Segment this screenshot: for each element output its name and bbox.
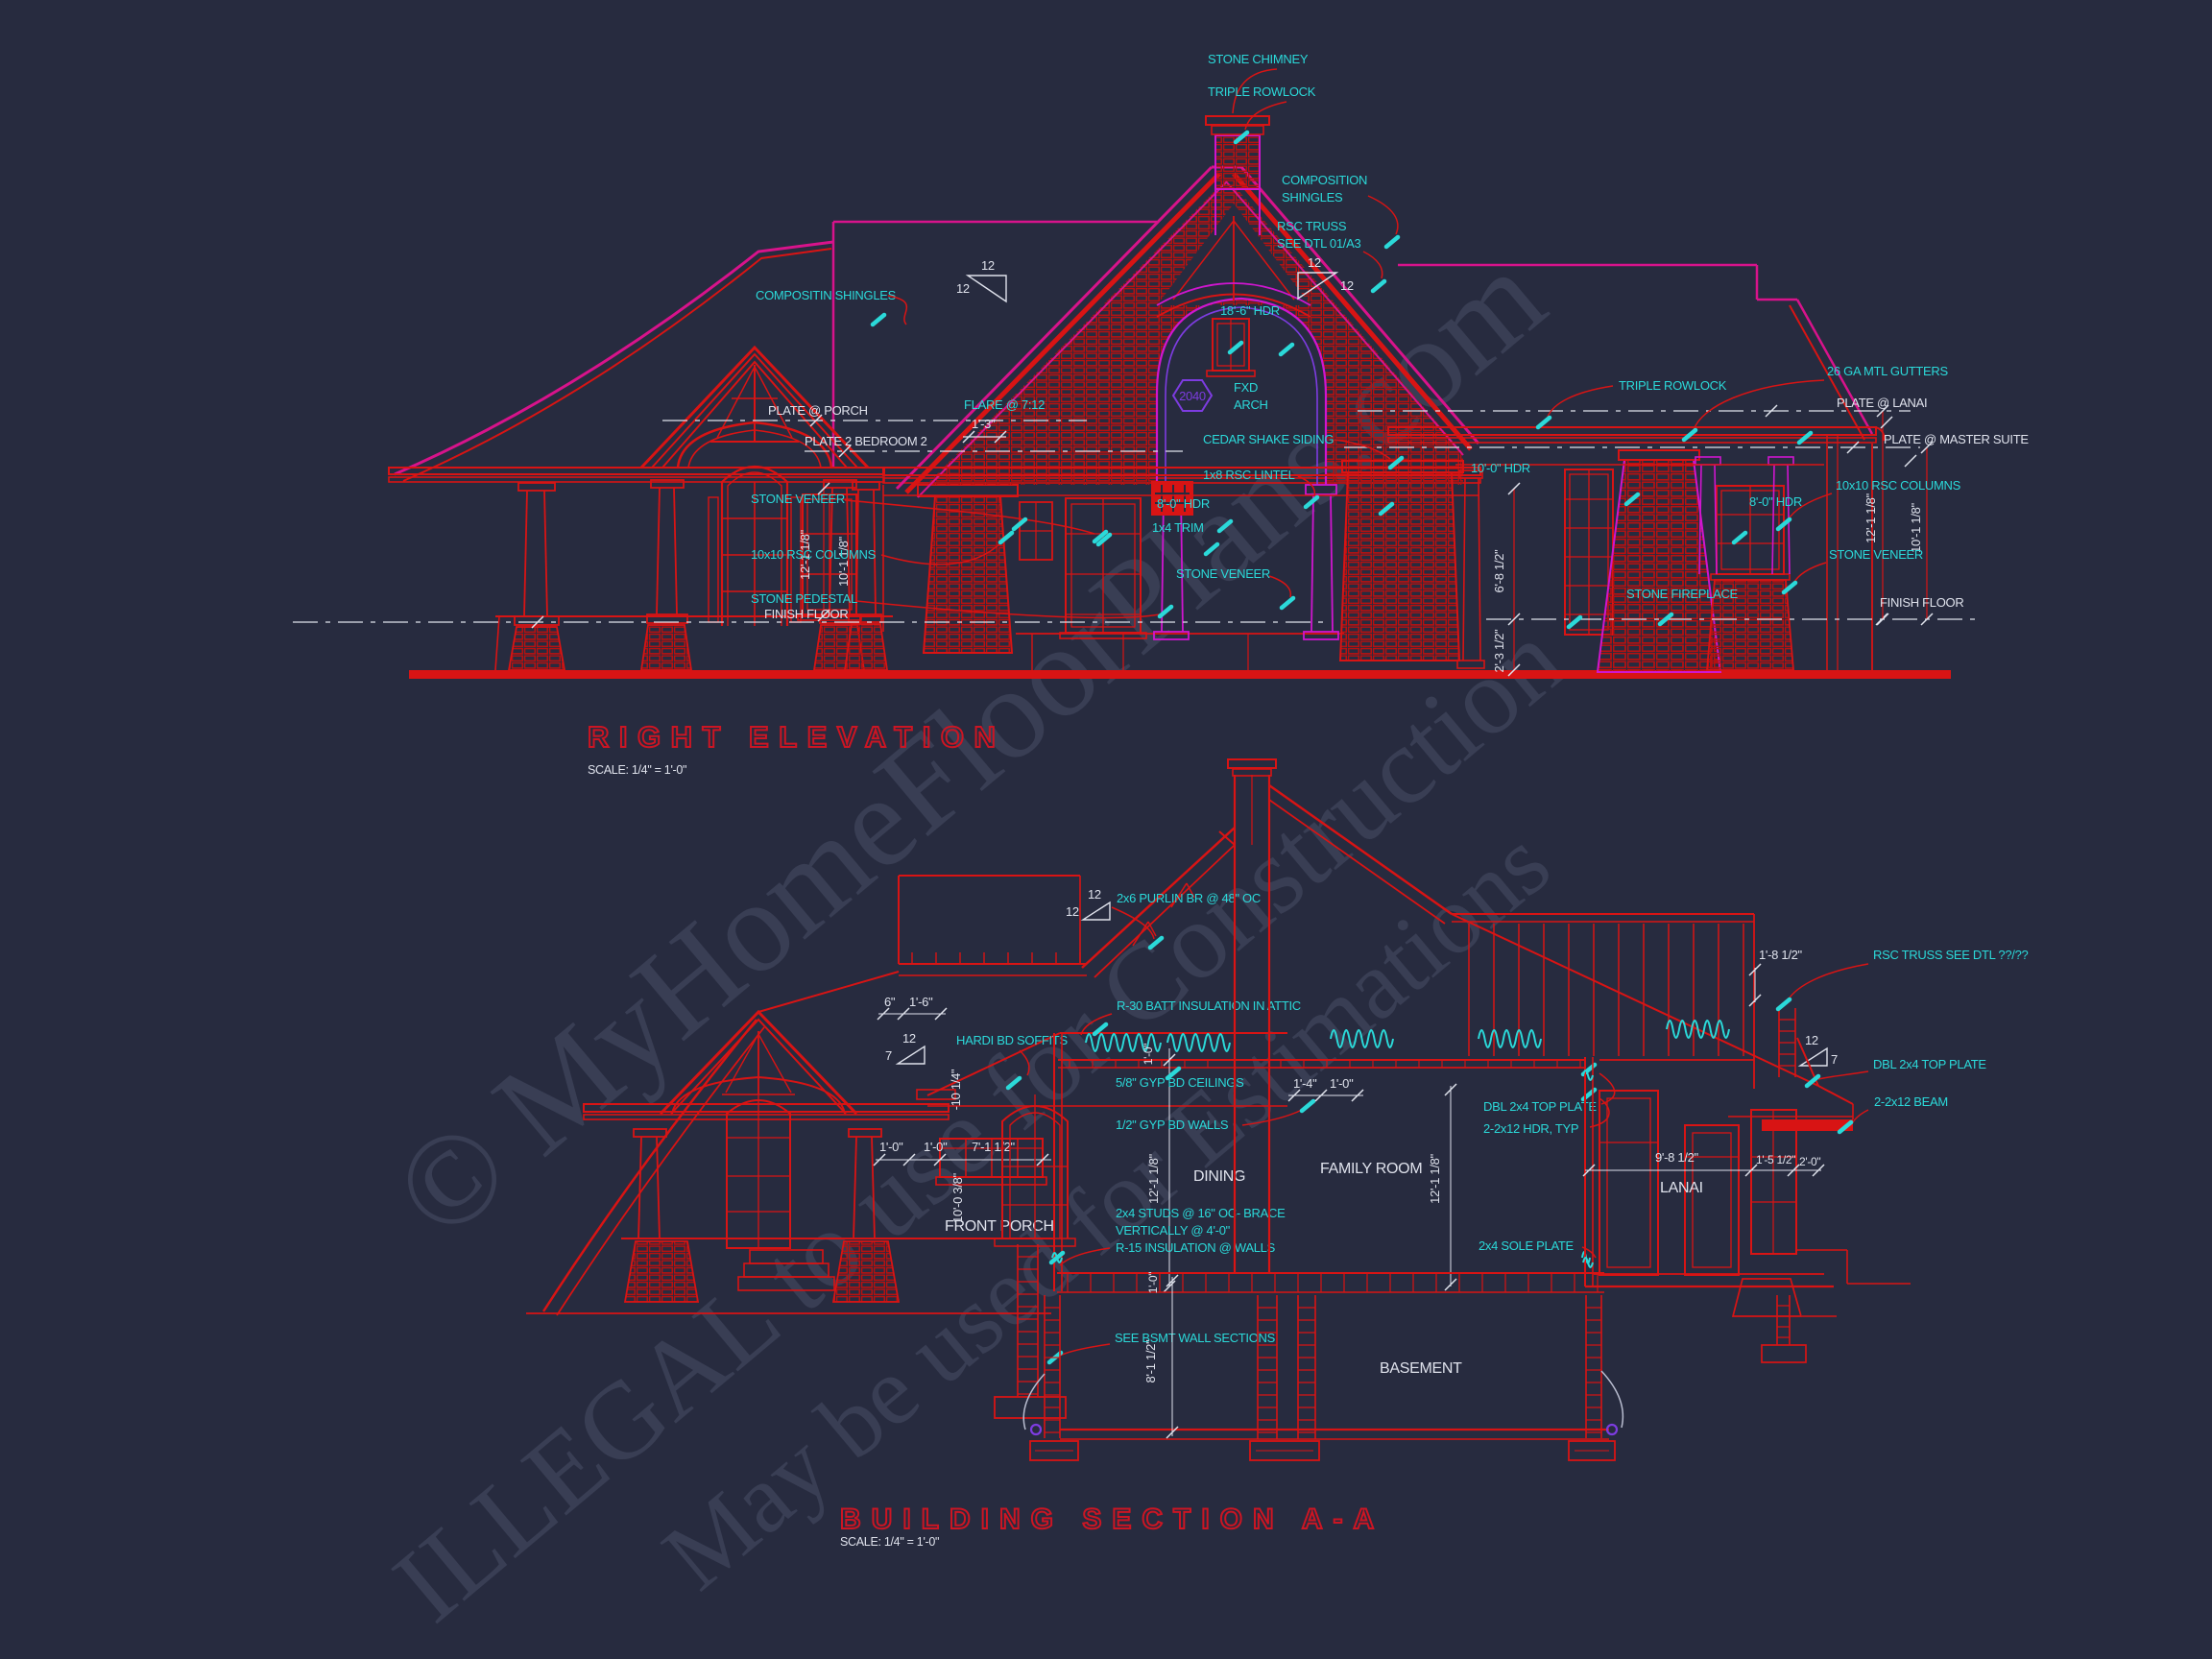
svg-text:12: 12 [1066,904,1079,919]
svg-text:TRIPLE ROWLOCK: TRIPLE ROWLOCK [1208,84,1316,99]
svg-text:2x6 PURLIN BR @ 48" OC: 2x6 PURLIN BR @ 48" OC [1117,891,1261,905]
svg-text:8'-1 1/2": 8'-1 1/2" [1143,1339,1158,1383]
svg-text:7: 7 [1831,1052,1838,1067]
svg-text:2'-3 1/2": 2'-3 1/2" [1492,629,1506,673]
svg-text:1'-0": 1'-0" [1142,1044,1155,1065]
svg-text:RSC TRUSS: RSC TRUSS [1277,219,1347,233]
svg-text:SCALE: 1/4" = 1'-0": SCALE: 1/4" = 1'-0" [840,1535,939,1549]
svg-text:HARDI BD SOFFITS: HARDI BD SOFFITS [956,1033,1068,1047]
svg-text:2'-0": 2'-0" [1799,1155,1820,1168]
svg-text:FAMILY ROOM: FAMILY ROOM [1320,1161,1422,1177]
svg-text:1'-5 1/2": 1'-5 1/2" [1756,1153,1795,1166]
svg-text:10'-0" HDR: 10'-0" HDR [1471,461,1530,475]
svg-text:12'-1 1/8": 12'-1 1/8" [1428,1153,1442,1203]
svg-text:TRIPLE ROWLOCK: TRIPLE ROWLOCK [1619,378,1727,393]
svg-text:SCALE: 1/4" = 1'-0": SCALE: 1/4" = 1'-0" [588,763,686,777]
svg-text:12'-1 1/8": 12'-1 1/8" [1863,493,1878,542]
svg-text:10'-0 3/8": 10'-0 3/8" [950,1172,965,1222]
svg-text:5/8" GYP BD CEILINGS: 5/8" GYP BD CEILINGS [1116,1075,1244,1090]
svg-text:DBL 2x4 TOP PLATE: DBL 2x4 TOP PLATE [1873,1057,1986,1071]
svg-text:LANAI: LANAI [1660,1180,1703,1196]
svg-text:DINING: DINING [1193,1168,1245,1185]
svg-text:2x4 SOLE PLATE: 2x4 SOLE PLATE [1479,1238,1575,1253]
svg-text:STONE CHIMNEY: STONE CHIMNEY [1208,52,1309,66]
svg-text:SEE DTL 01/A3: SEE DTL 01/A3 [1277,236,1360,251]
svg-text:2-2x12 BEAM: 2-2x12 BEAM [1874,1094,1948,1109]
svg-text:ARCH: ARCH [1234,397,1268,412]
svg-text:RIGHT ELEVATION: RIGHT ELEVATION [588,720,1005,754]
svg-text:2040: 2040 [1179,389,1206,403]
svg-text:1x4 TRIM: 1x4 TRIM [1152,520,1204,535]
svg-text:12: 12 [1308,255,1321,270]
svg-text:SHINGLES: SHINGLES [1282,190,1343,204]
svg-text:SEE BSMT WALL SECTIONS: SEE BSMT WALL SECTIONS [1115,1331,1276,1345]
svg-text:12: 12 [981,258,995,273]
svg-text:PLATE @ MASTER SUITE: PLATE @ MASTER SUITE [1884,432,2029,446]
svg-text:12'-1 1/8": 12'-1 1/8" [1146,1153,1161,1203]
svg-text:FINISH FLOOR: FINISH FLOOR [764,607,848,621]
svg-text:2x4 STUDS @ 16" OC- BRACE: 2x4 STUDS @ 16" OC- BRACE [1116,1206,1286,1220]
svg-text:1/2" GYP BD WALLS: 1/2" GYP BD WALLS [1116,1118,1229,1132]
svg-text:9'-8 1/2": 9'-8 1/2" [1655,1150,1699,1165]
svg-text:BASEMENT: BASEMENT [1380,1360,1462,1377]
svg-text:10x10 RSC COLUMNS: 10x10 RSC COLUMNS [751,547,877,562]
svg-text:1'-0": 1'-0" [1146,1272,1160,1293]
svg-text:BUILDING SECTION A-A: BUILDING SECTION A-A [840,1503,1384,1535]
svg-text:R-30 BATT INSULATION IN ATTIC: R-30 BATT INSULATION IN ATTIC [1117,998,1301,1013]
svg-text:STONE PEDESTAL: STONE PEDESTAL [751,591,857,606]
svg-text:12: 12 [1805,1033,1818,1047]
svg-text:1'-8 1/2": 1'-8 1/2" [1759,948,1803,962]
svg-text:-10 1/4": -10 1/4" [949,1069,963,1110]
svg-text:PLATE @ PORCH: PLATE @ PORCH [768,403,868,418]
svg-text:12: 12 [1088,887,1101,902]
svg-text:1'-0": 1'-0" [1330,1076,1354,1091]
svg-text:1'-0": 1'-0" [879,1140,903,1154]
svg-text:6'-8 1/2": 6'-8 1/2" [1492,549,1506,593]
svg-text:STONE FIREPLACE: STONE FIREPLACE [1626,587,1739,601]
svg-text:DBL 2x4 TOP PLATE: DBL 2x4 TOP PLATE [1483,1099,1597,1114]
svg-text:10'-1 1/8": 10'-1 1/8" [1909,502,1923,552]
svg-text:COMPOSITIN SHINGLES: COMPOSITIN SHINGLES [756,288,897,302]
svg-text:6": 6" [884,995,896,1009]
svg-text:1x8 RSC LINTEL: 1x8 RSC LINTEL [1203,468,1295,482]
svg-text:12: 12 [956,281,970,296]
svg-text:1'-3": 1'-3" [972,417,996,431]
svg-text:STONE VENEER: STONE VENEER [751,492,845,506]
svg-text:7: 7 [885,1048,892,1063]
svg-text:2-2x12 HDR, TYP: 2-2x12 HDR, TYP [1483,1121,1578,1136]
svg-text:26 GA MTL GUTTERS: 26 GA MTL GUTTERS [1827,364,1949,378]
svg-text:FXD: FXD [1234,380,1258,395]
svg-text:CEDAR SHAKE SIDING: CEDAR SHAKE SIDING [1203,432,1334,446]
svg-text:PLATE @ LANAI: PLATE @ LANAI [1837,396,1927,410]
svg-text:7'-1 1/2": 7'-1 1/2" [972,1140,1016,1154]
svg-text:RSC TRUSS SEE DTL ??/??: RSC TRUSS SEE DTL ??/?? [1873,948,2029,962]
svg-text:1'-4": 1'-4" [1293,1076,1317,1091]
svg-text:R-15 INSULATION @ WALLS: R-15 INSULATION @ WALLS [1116,1240,1276,1255]
svg-text:1'-0": 1'-0" [924,1140,948,1154]
svg-text:12: 12 [1340,278,1354,293]
svg-text:COMPOSITION: COMPOSITION [1282,173,1367,187]
svg-text:8'-0" HDR: 8'-0" HDR [1749,494,1802,509]
svg-text:1'-6": 1'-6" [909,995,933,1009]
svg-text:18'-6" HDR: 18'-6" HDR [1220,303,1280,318]
svg-text:STONE VENEER: STONE VENEER [1176,566,1270,581]
svg-text:10x10 RSC COLUMNS: 10x10 RSC COLUMNS [1836,478,1961,493]
svg-text:PLATE 2 BEDROOM 2: PLATE 2 BEDROOM 2 [805,434,927,448]
svg-text:FRONT PORCH: FRONT PORCH [945,1218,1054,1235]
svg-text:VERTICALLY @ 4'-0": VERTICALLY @ 4'-0" [1116,1223,1231,1238]
svg-text:STONE VENEER: STONE VENEER [1829,547,1923,562]
svg-text:FLARE @ 7:12: FLARE @ 7:12 [964,397,1045,412]
svg-text:8'-0" HDR: 8'-0" HDR [1157,496,1210,511]
svg-text:FINISH FLOOR: FINISH FLOOR [1880,595,1963,610]
svg-text:12: 12 [902,1031,916,1046]
